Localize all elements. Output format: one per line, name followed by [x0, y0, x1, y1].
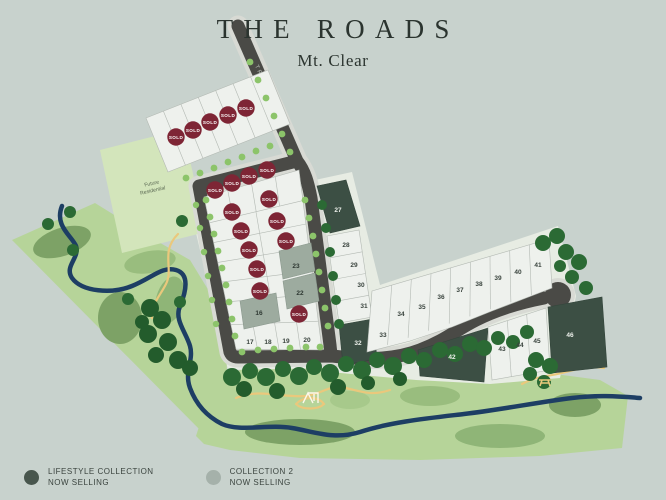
legend-collection2-line2: NOW SELLING: [230, 478, 291, 487]
lot-number-28[interactable]: 28: [342, 242, 350, 249]
sold-badge: SOLD: [167, 128, 184, 145]
svg-text:SOLD: SOLD: [225, 210, 240, 215]
svg-text:SOLD: SOLD: [203, 120, 218, 125]
svg-text:SOLD: SOLD: [242, 248, 257, 253]
sold-badge: SOLD: [206, 181, 223, 198]
sold-badge: SOLD: [184, 121, 201, 138]
lot-number-34[interactable]: 34: [397, 311, 405, 318]
lot-number-32[interactable]: 32: [354, 340, 362, 347]
legend: LIFESTYLE COLLECTION NOW SELLING COLLECT…: [24, 467, 293, 488]
svg-text:SOLD: SOLD: [262, 197, 277, 202]
lot-number-18[interactable]: 18: [264, 339, 272, 346]
legend-lifestyle-line2: NOW SELLING: [48, 478, 109, 487]
collection-2-swatch: [206, 470, 221, 485]
sold-badge: SOLD: [258, 161, 275, 178]
sold-badge: SOLD: [223, 174, 240, 191]
legend-item-collection-2: COLLECTION 2 NOW SELLING: [206, 467, 294, 488]
svg-text:SOLD: SOLD: [239, 106, 254, 111]
svg-text:SOLD: SOLD: [292, 312, 307, 317]
lot-number-31[interactable]: 31: [360, 303, 368, 310]
svg-text:SOLD: SOLD: [250, 267, 265, 272]
lot-number-35[interactable]: 35: [418, 304, 426, 311]
sold-badge: SOLD: [290, 305, 307, 322]
sold-badge: SOLD: [201, 113, 218, 130]
masterplan-page: Future Residential TREZISE LANE: [0, 0, 666, 500]
sold-badge: SOLD: [240, 167, 257, 184]
sold-badge: SOLD: [232, 222, 249, 239]
lot-number-38[interactable]: 38: [475, 281, 483, 288]
svg-text:SOLD: SOLD: [234, 229, 249, 234]
svg-text:SOLD: SOLD: [279, 239, 294, 244]
sold-badge: SOLD: [260, 190, 277, 207]
lot-number-19[interactable]: 19: [282, 338, 290, 345]
lot-number-20[interactable]: 20: [303, 337, 311, 344]
sold-badge: SOLD: [240, 241, 257, 258]
sold-badge: SOLD: [237, 99, 254, 116]
legend-lifestyle-line1: LIFESTYLE COLLECTION: [48, 467, 154, 476]
lot-number-46[interactable]: 46: [566, 332, 574, 339]
lot-number-23[interactable]: 23: [292, 263, 300, 270]
svg-text:SOLD: SOLD: [242, 174, 257, 179]
svg-text:SOLD: SOLD: [186, 128, 201, 133]
lot-number-42[interactable]: 42: [448, 354, 456, 361]
legend-collection2-line1: COLLECTION 2: [230, 467, 294, 476]
estate-map: Future Residential TREZISE LANE: [0, 0, 666, 500]
svg-text:SOLD: SOLD: [221, 113, 236, 118]
sold-badge: SOLD: [268, 212, 285, 229]
lot-number-45[interactable]: 45: [533, 338, 541, 345]
sold-badge: SOLD: [219, 106, 236, 123]
lot-number-41[interactable]: 41: [534, 262, 542, 269]
lot-number-17[interactable]: 17: [246, 339, 254, 346]
svg-text:SOLD: SOLD: [208, 188, 223, 193]
lot-number-40[interactable]: 40: [514, 269, 522, 276]
lot-number-36[interactable]: 36: [437, 294, 445, 301]
lot-parcel-46[interactable]: [548, 297, 607, 373]
svg-text:SOLD: SOLD: [225, 181, 240, 186]
lot-number-30[interactable]: 30: [357, 282, 365, 289]
lot-number-22[interactable]: 22: [296, 290, 304, 297]
lot-number-39[interactable]: 39: [494, 275, 502, 282]
lot-number-44[interactable]: 44: [516, 342, 524, 349]
lifestyle-collection-swatch: [24, 470, 39, 485]
lot-number-27[interactable]: 27: [334, 207, 342, 214]
sold-badge: SOLD: [248, 260, 265, 277]
sold-badge: SOLD: [251, 282, 268, 299]
lot-number-37[interactable]: 37: [456, 287, 464, 294]
lot-number-33[interactable]: 33: [379, 332, 387, 339]
sold-badge: SOLD: [277, 232, 294, 249]
lot-number-29[interactable]: 29: [350, 262, 358, 269]
svg-text:SOLD: SOLD: [169, 135, 184, 140]
sold-badge: SOLD: [223, 203, 240, 220]
svg-text:SOLD: SOLD: [260, 168, 275, 173]
lot-number-43[interactable]: 43: [498, 346, 506, 353]
legend-item-lifestyle-collection: LIFESTYLE COLLECTION NOW SELLING: [24, 467, 154, 488]
svg-text:SOLD: SOLD: [253, 289, 268, 294]
lot-number-16[interactable]: 16: [255, 310, 263, 317]
svg-text:SOLD: SOLD: [270, 219, 285, 224]
